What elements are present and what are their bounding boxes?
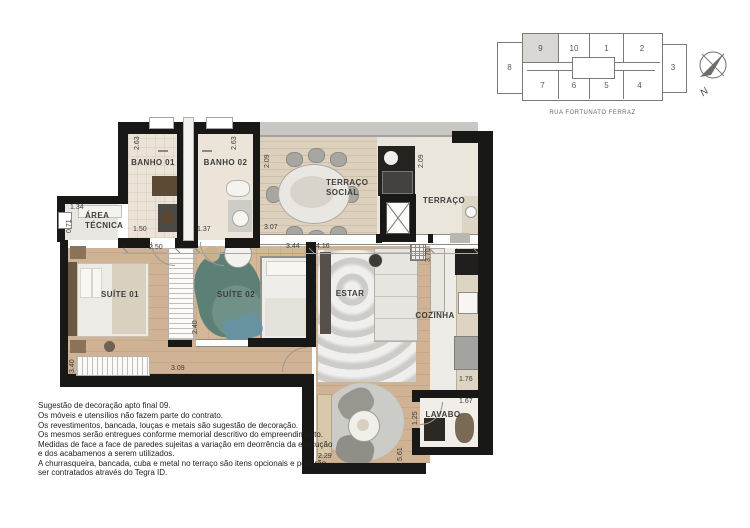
dim-suite02-top: 3.44 xyxy=(286,243,300,250)
suite02-blanket xyxy=(265,298,307,336)
unit-number: 1 xyxy=(604,44,608,53)
wall-left-banhos xyxy=(118,122,128,204)
wall-suite01-left xyxy=(60,240,68,382)
suite01-wardrobe xyxy=(76,356,150,376)
keyplan-unit-9: 9 xyxy=(523,34,559,63)
suite01-label: SUÍTE 01 xyxy=(78,290,162,299)
cozinha-label: COZINHA xyxy=(409,311,461,320)
suite01-blanket xyxy=(112,264,146,334)
dim-suite01-width: 3.09 xyxy=(171,365,185,372)
suite01-nightstand xyxy=(70,246,86,259)
street-label: RUA FORTUNATO FERRAZ xyxy=(505,110,680,116)
corridor-shaft xyxy=(183,117,194,241)
kitchen-sink xyxy=(458,292,478,314)
banho01-basin xyxy=(161,211,174,224)
dim-estar-height: 5.61 xyxy=(397,447,404,461)
floorplan-sheet: BANHO 01 BANHO 02 TERRAÇO SOCIAL TERRAÇO… xyxy=(0,0,750,528)
terraco-social-label-line1: TERRAÇO xyxy=(326,178,368,187)
keyplan-unit-8: 8 xyxy=(498,43,521,91)
disclaimer-line: Os móveis e utensílios não fazem parte d… xyxy=(38,411,223,421)
suite01-stool xyxy=(104,341,115,352)
shower-head-icon xyxy=(158,150,168,152)
shower-head-icon xyxy=(202,150,212,152)
window-notch xyxy=(206,117,233,129)
fridge xyxy=(454,336,481,370)
suite01-bed-headboard xyxy=(68,262,77,336)
dim-area-tecnica-height: 0.71 xyxy=(66,219,73,233)
wall-lavabo-top xyxy=(412,390,493,398)
banho02-label: BANHO 02 xyxy=(198,158,253,167)
dim-banho02-width: 1.37 xyxy=(197,226,211,233)
suite02-sliding-door xyxy=(196,339,248,347)
kitchen-cabinet xyxy=(430,248,445,312)
dim-lavabo-width: 1.67 xyxy=(459,398,473,405)
dim-banho01-width: 1.50 xyxy=(133,226,147,233)
disclaimer-line: e dos acabamenos a serem utilizados. xyxy=(38,449,175,459)
dim-lavabo-height: 1.25 xyxy=(412,411,419,425)
wall-suite02-bottom xyxy=(248,338,312,347)
banho01-label: BANHO 01 xyxy=(129,158,177,167)
glass-mullion xyxy=(428,234,433,243)
dim-suite02-height: 2.40 xyxy=(192,320,199,334)
dim-estar-top: 4.16 xyxy=(316,243,330,250)
window-notch xyxy=(149,117,174,129)
grill-grate xyxy=(382,171,413,194)
unit-number: 10 xyxy=(570,44,579,53)
dim-area-tecnica-width: 1.34 xyxy=(70,204,84,211)
estar-label: ESTAR xyxy=(318,289,382,298)
wall-area-tecnica-top xyxy=(57,196,118,204)
keyplan-unit-4: 4 xyxy=(624,70,655,99)
suite02-pillow xyxy=(266,261,308,276)
area-tecnica-label-line1: ÁREA xyxy=(85,211,109,220)
banho01-vanity xyxy=(152,176,177,196)
unit-number: 2 xyxy=(640,44,644,53)
side-table xyxy=(368,253,383,268)
disclaimer-line: Sugestão de decoração apto final 09. xyxy=(38,401,171,411)
terrace-railing xyxy=(258,122,478,137)
terraco-door-panel xyxy=(450,233,470,243)
compass-icon: N xyxy=(691,47,737,103)
dim-terraco-social-width: 3.07 xyxy=(264,224,278,231)
dining-chair xyxy=(308,148,325,163)
unit-number: 6 xyxy=(572,81,576,90)
unit-number: 8 xyxy=(507,63,511,72)
wall-banho02-right xyxy=(253,122,260,242)
disclaimer-line: ser contratados através do Tegra ID. xyxy=(38,468,167,478)
compass-north-label: N xyxy=(698,85,711,99)
disclaimer-line: Os mesmos serão entregues conforme memor… xyxy=(38,430,323,440)
wall-lavabo-bottom xyxy=(412,447,493,455)
wall-below-banhos-c xyxy=(225,238,260,248)
keyplan-core xyxy=(572,57,615,79)
dim-suite01-top: 2.50 xyxy=(149,244,163,251)
wall-suite02-right xyxy=(306,242,316,347)
unit-number: 7 xyxy=(540,81,544,90)
dim-banho01-height: 2.63 xyxy=(134,136,141,150)
unit-number: 4 xyxy=(637,81,641,90)
wall-lavabo-left-a xyxy=(412,390,420,402)
unit-number: 9 xyxy=(538,44,542,53)
dining-chair xyxy=(286,152,303,167)
terraco-sink xyxy=(465,206,477,218)
unit-number: 5 xyxy=(604,81,608,90)
keyplan-unit-3: 3 xyxy=(662,45,684,90)
dim-terraco-height: 2.09 xyxy=(418,154,425,168)
wall-right xyxy=(478,131,493,455)
banho02-toilet xyxy=(226,180,250,197)
area-tecnica-label-line2: TÉCNICA xyxy=(85,221,123,230)
dim-terraco-social-height: 2.09 xyxy=(264,154,271,168)
table-plate xyxy=(357,419,369,431)
dim-cozinha-width: 1.76 xyxy=(459,376,473,383)
terraco-label: TERRAÇO xyxy=(414,196,474,205)
dining-chair xyxy=(330,152,347,167)
dim-cozinha-height: 3.70 xyxy=(425,248,432,262)
terraco-social-label-line2: SOCIAL xyxy=(326,188,359,197)
banho02-sink xyxy=(232,210,249,227)
lavabo-label: LAVABO xyxy=(417,410,469,419)
keyplan-unit-7: 7 xyxy=(527,70,559,99)
unit-number: 3 xyxy=(671,63,675,72)
keyplan-unit-2: 2 xyxy=(624,34,660,63)
suite02-label: SUÍTE 02 xyxy=(196,290,276,299)
dim-banho02-height: 2.63 xyxy=(231,136,238,150)
shaft-x-box xyxy=(386,202,410,234)
suite01-nightstand xyxy=(70,340,86,353)
counter-sink xyxy=(384,151,398,165)
dim-suite01-height: 3.40 xyxy=(69,359,76,373)
